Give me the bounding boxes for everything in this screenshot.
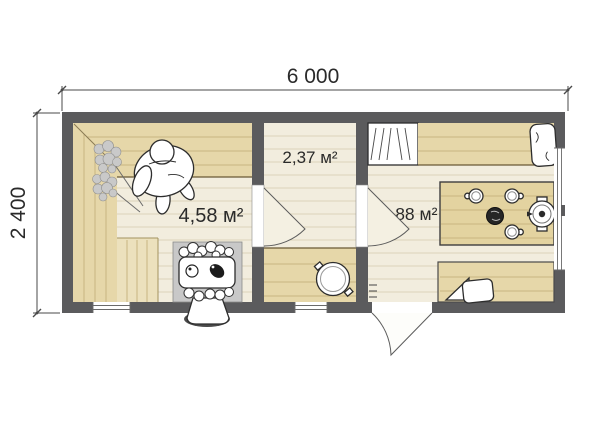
stove-door-glint	[212, 266, 215, 269]
rest-door-threshold	[356, 185, 368, 247]
stove-gauge	[186, 265, 198, 277]
basin-inner	[321, 267, 346, 292]
window-rest-room	[554, 148, 565, 270]
floor-plan-page: 4,58 м² 2,37 м²	[0, 0, 600, 424]
rest-bottom-bench	[438, 262, 554, 304]
width-dimension-label: 6 000	[287, 65, 340, 88]
dimension-width: 6 000	[58, 65, 572, 111]
pillow-top	[530, 123, 558, 167]
person-head	[150, 140, 174, 164]
steam-door-threshold	[252, 185, 264, 247]
window-steam-room	[93, 302, 130, 313]
floor-plan-drawing: 4,58 м² 2,37 м²	[0, 0, 600, 424]
window-mullion	[561, 205, 565, 216]
dimension-height: 2 400	[7, 109, 60, 317]
entrance-door-swing	[372, 313, 432, 355]
washing-room-area-label: 2,37 м²	[282, 148, 337, 167]
sauna-stove	[173, 242, 242, 328]
table	[440, 182, 555, 245]
pillow-bottom	[462, 278, 494, 303]
height-dimension-label: 2 400	[7, 187, 30, 240]
stove-gauge-dot	[189, 268, 192, 271]
teapot	[487, 208, 504, 225]
entrance-door	[372, 302, 432, 355]
window-washing-room	[295, 302, 327, 313]
stove-firebox-tunnel	[187, 298, 229, 324]
steam-room-area-label: 4,58 м²	[179, 205, 244, 227]
entrance-threshold	[372, 302, 432, 313]
